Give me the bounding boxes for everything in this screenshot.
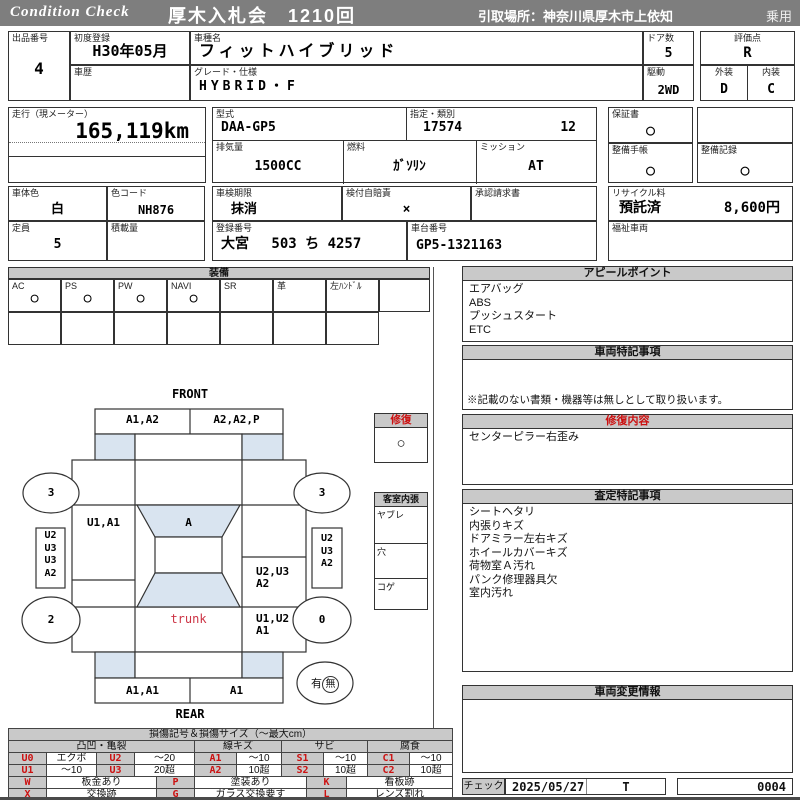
equipment-label-leather: 革 <box>277 281 286 291</box>
mileage-value: 165,119km <box>9 119 205 143</box>
equipment-label-sr: SR <box>224 281 237 291</box>
equipment-label-lhd: 左ﾊﾝﾄﾞﾙ <box>330 281 362 291</box>
insurance-label: 検付自賠責 <box>346 188 391 198</box>
legend-group-scratch: 線キズ <box>195 741 282 753</box>
maintenance-book-mark: ○ <box>609 161 692 179</box>
legend-title: 損傷記号＆損傷サイズ（～最大cm） <box>9 729 453 741</box>
rear-label: REAR <box>140 707 240 721</box>
approval-cell: 承認請求書 <box>471 186 597 221</box>
displacement-label: 排気量 <box>216 142 243 152</box>
capacity-value: 5 <box>9 237 106 252</box>
mission-value: AT <box>476 159 596 174</box>
serial-number-cell: 0004 <box>677 778 793 795</box>
engine-group-cell: 型式 DAA-GP5 指定・類別 17574 12 排気量 1500CC 燃料 … <box>212 107 597 183</box>
legend-group-dent: 凸凹・亀裂 <box>9 741 195 753</box>
equipment-cell-navi: NAVI ○ <box>167 279 220 312</box>
first-registration-value: H30年05月 <box>71 40 189 61</box>
serial-number: 0004 <box>757 780 786 794</box>
exterior-grade-label: 外装 <box>701 67 747 77</box>
car-history-label: 車歴 <box>74 67 92 77</box>
drive-cell: 駆動 2WD <box>643 65 694 101</box>
body-color-label: 車体色 <box>12 188 39 198</box>
equipment-mark-ps: ○ <box>62 291 113 306</box>
assessment-notes-title: 査定特記事項 <box>463 490 792 504</box>
doors-label: ドア数 <box>647 33 674 43</box>
capacity-cell: 定員 5 <box>8 221 107 261</box>
spare-no-circled: 無 <box>322 676 339 693</box>
wheel-front-left-depth: 3 <box>36 486 66 499</box>
doors-cell: ドア数 5 <box>643 31 694 65</box>
interior-grade-cell: 内装 C <box>747 65 795 101</box>
vehicle-notes-footer: ※記載のない書類・機器等は無しとして取り扱います。 <box>467 392 728 407</box>
equipment-label-ps: PS <box>65 281 77 291</box>
change-info-title: 車両変更情報 <box>463 686 792 700</box>
interior-grade-label: 内装 <box>748 67 794 77</box>
repair-detail-list: センターピラー右歪み <box>463 429 792 447</box>
legend-desc: エクボ <box>47 753 97 765</box>
vehicle-notes-title: 車両特記事項 <box>463 346 792 360</box>
designation-label: 指定・類別 <box>410 109 455 119</box>
registration-number-value: 大宮 503 ち 4257 <box>213 233 406 253</box>
header-bar: Condition Check 厚木入札会 1210回 引取場所：神奈川県厚木市… <box>0 0 800 26</box>
maintenance-book-label: 整備手帳 <box>612 145 648 155</box>
displacement-value: 1500CC <box>213 159 343 174</box>
car-history-cell: 車歴 <box>70 65 190 101</box>
equipment-header: 装備 <box>8 267 430 279</box>
body-color-value: 白 <box>9 198 106 217</box>
repair-flag-mark: ○ <box>375 428 427 452</box>
inspection-cell: 車検期限 抹消 <box>212 186 342 221</box>
legend-code: K <box>307 777 347 789</box>
spare-yes-label: 有 <box>311 678 322 690</box>
equipment-cell-leather: 革 <box>273 279 326 312</box>
registration-number-label: 登録番号 <box>216 223 252 233</box>
legend-desc: 看板跡 <box>347 777 453 789</box>
fuel-label: 燃料 <box>347 142 365 152</box>
auction-title: 厚木入札会 1210回 <box>168 2 356 28</box>
legend-code: C1 <box>368 753 410 765</box>
legend-desc: 20超 <box>135 765 195 777</box>
equipment-cell-sr: SR <box>220 279 273 312</box>
grade-cell: グレード・仕様 HYBRID・F <box>190 65 643 101</box>
front-corner-left <box>95 434 135 460</box>
lot-number-value: 4 <box>9 59 69 78</box>
appeal-points-list: エアバッグ ABS プッシュスタート ETC <box>463 281 792 339</box>
warranty-cell: 保証書 ○ <box>608 107 693 143</box>
equipment-mark-navi: ○ <box>168 291 219 306</box>
damage-legend-table: 損傷記号＆損傷サイズ（～最大cm） 凸凹・亀裂 線キズ サビ 腐食 U0 エクボ… <box>8 728 453 777</box>
exterior-grade-cell: 外装 D <box>700 65 748 101</box>
check-label: チェック <box>462 778 505 795</box>
front-door-left-codes: U1,A1 <box>72 516 135 529</box>
chassis-number-value: GP5-1321163 <box>408 238 596 253</box>
legend-code: C2 <box>368 765 410 777</box>
chassis-number-cell: 車台番号 GP5-1321163 <box>407 221 597 261</box>
legend-desc: ～10 <box>237 753 282 765</box>
mileage-divider <box>9 156 205 157</box>
legend-desc: 10超 <box>410 765 453 777</box>
rear-corner-right <box>242 652 283 678</box>
model-code-value: DAA-GP5 <box>213 120 596 135</box>
maintenance-book-cell: 整備手帳 ○ <box>608 143 693 183</box>
brand-logo: Condition Check <box>10 4 130 21</box>
rocker-left-codes: U2 U3 U3 A2 <box>36 530 65 580</box>
check-date-cell: 2025/05/27 T <box>505 778 666 795</box>
legend-code: U3 <box>97 765 135 777</box>
equipment-cell-ac: AC ○ <box>8 279 61 312</box>
model-name-cell: 車種名 フィットハイブリッド <box>190 31 643 65</box>
check-date: 2025/05/27 <box>512 780 584 794</box>
body-color-cell: 車体色 白 <box>8 186 107 221</box>
repair-detail-panel: 修復内容 センターピラー右歪み <box>462 414 793 485</box>
equipment-cell-ps: PS ○ <box>61 279 114 312</box>
equipment-cell-lhd: 左ﾊﾝﾄﾞﾙ <box>326 279 379 312</box>
wheel-rear-right-depth: 0 <box>307 613 337 626</box>
welfare-vehicle-label: 福祉車両 <box>612 223 648 233</box>
legend-code: A1 <box>195 753 237 765</box>
front-corner-right <box>242 434 283 460</box>
pickup-location: 引取場所：神奈川県厚木市上依知 <box>478 6 673 25</box>
recycle-status: 預託済 <box>619 197 661 217</box>
first-registration-cell: 初度登録 H30年05月 <box>70 31 190 65</box>
equipment-cell-pw: PW ○ <box>114 279 167 312</box>
vehicle-category: 乗用 <box>766 6 792 25</box>
right-quarter-codes: U2,U3 A2 <box>256 566 306 590</box>
legend-code: U0 <box>9 753 47 765</box>
equipment-label-ac: AC <box>12 281 25 291</box>
spare-tire-indicator: 有無 <box>297 675 353 693</box>
windshield-code: A <box>137 516 240 529</box>
change-info-panel: 車両変更情報 <box>462 685 793 773</box>
trunk-label: trunk <box>135 612 242 626</box>
score-cell: 評価点 R <box>700 31 795 65</box>
legend-code: P <box>157 777 195 789</box>
maintenance-record-mark: ○ <box>698 161 792 179</box>
equipment-label-pw: PW <box>118 281 133 291</box>
payload-cell: 積載量 <box>107 221 205 261</box>
legend-desc: ～10 <box>47 765 97 777</box>
color-code-label: 色コード <box>111 188 147 198</box>
equipment-label-navi: NAVI <box>171 281 191 291</box>
payload-label: 積載量 <box>111 223 138 233</box>
inspection-value: 抹消 <box>213 198 341 217</box>
cabin-row-hole: 穴 <box>375 544 427 579</box>
legend-code: S1 <box>282 753 324 765</box>
auction-sheet: Condition Check 厚木入札会 1210回 引取場所：神奈川県厚木市… <box>0 0 800 800</box>
color-code-value: NH876 <box>108 203 204 217</box>
legend-group-rust: サビ <box>282 741 368 753</box>
wheel-front-right-depth: 3 <box>307 486 337 499</box>
appeal-points-panel: アピールポイント エアバッグ ABS プッシュスタート ETC <box>462 266 793 342</box>
empty-cell <box>697 107 793 143</box>
front-bumper-right-codes: A2,A2,P <box>190 413 283 426</box>
front-bumper-left-codes: A1,A2 <box>95 413 190 426</box>
rear-bumper-right-codes: A1 <box>190 684 283 697</box>
legend-code: W <box>9 777 47 789</box>
recycle-fee-cell: リサイクル料 預託済 8,600円 <box>608 186 793 221</box>
color-code-cell: 色コード NH876 <box>107 186 205 221</box>
assessment-notes-panel: 査定特記事項 シートヘタリ 内張りキズ ドアミラー左右キズ ホイールカバーキズ … <box>462 489 793 672</box>
maintenance-record-label: 整備記録 <box>701 145 737 155</box>
fuel-value: ｶﾞｿﾘﾝ <box>343 155 476 174</box>
cabin-interior-box: 客室内張 ヤブレ 穴 コゲ <box>374 492 428 610</box>
wheel-rear-left-depth: 2 <box>36 613 66 626</box>
drive-value: 2WD <box>644 83 693 97</box>
registration-number-cell: 登録番号 大宮 503 ち 4257 <box>212 221 407 261</box>
appeal-points-title: アピールポイント <box>463 267 792 281</box>
drive-label: 駆動 <box>647 67 665 77</box>
vehicle-notes-panel: 車両特記事項 ※記載のない書類・機器等は無しとして取り扱います。 <box>462 345 793 410</box>
legend-desc: 10超 <box>237 765 282 777</box>
legend-code: A2 <box>195 765 237 777</box>
lot-number-cell: 出品番号 4 <box>8 31 70 101</box>
warranty-mark: ○ <box>609 121 692 139</box>
roof <box>155 537 222 573</box>
legend-desc: 10超 <box>324 765 368 777</box>
equipment-mark-ac: ○ <box>9 291 60 306</box>
score-value: R <box>701 45 794 61</box>
legend-group-corrosion: 腐食 <box>368 741 453 753</box>
repair-detail-title: 修復内容 <box>463 415 792 429</box>
designation-value-2: 12 <box>560 120 576 135</box>
capacity-label: 定員 <box>12 223 30 233</box>
mileage-cell: 走行（現メーター） 165,119km <box>8 107 206 183</box>
approval-label: 承認請求書 <box>475 188 520 198</box>
doors-value: 5 <box>644 46 693 61</box>
rear-bumper-left-codes: A1,A1 <box>95 684 190 697</box>
mileage-divider-dotted <box>9 142 205 143</box>
warranty-label: 保証書 <box>612 109 639 119</box>
rocker-right-codes: U2 U3 A2 <box>312 533 342 571</box>
legend-desc: ～10 <box>324 753 368 765</box>
designation-value-1: 17574 <box>423 120 462 135</box>
cabin-interior-title: 客室内張 <box>375 493 427 507</box>
legend-desc: 塗装あり <box>195 777 307 789</box>
welfare-vehicle-cell: 福祉車両 <box>608 221 793 261</box>
cabin-row-burn: コゲ <box>375 579 427 613</box>
insurance-mark: × <box>343 202 470 217</box>
grade-value: HYBRID・F <box>191 75 642 94</box>
equipment-mark-pw: ○ <box>115 291 166 306</box>
model-code-label: 型式 <box>216 109 234 119</box>
check-inspector: T <box>586 780 666 794</box>
maintenance-record-cell: 整備記録 ○ <box>697 143 793 183</box>
legend-desc: ～20 <box>135 753 195 765</box>
equipment-cell-extra <box>379 279 430 312</box>
score-label: 評価点 <box>701 33 794 43</box>
model-name-value: フィットハイブリッド <box>191 37 642 61</box>
assessment-notes-list: シートヘタリ 内張りキズ ドアミラー左右キズ ホイールカバーキズ 荷物室Ａ汚れ … <box>463 504 792 603</box>
rear-right-codes: U1,U2 A1 <box>256 613 306 637</box>
inspection-label: 車検期限 <box>216 188 252 198</box>
change-info-list <box>463 700 792 704</box>
repair-flag-box: 修復 ○ <box>374 413 428 463</box>
recycle-fee-value: 8,600円 <box>724 197 780 217</box>
front-label: FRONT <box>140 387 240 401</box>
cabin-row-tear: ヤブレ <box>375 507 427 544</box>
legend-desc: ～10 <box>410 753 453 765</box>
repair-flag-title: 修復 <box>375 414 427 428</box>
mission-label: ミッション <box>480 142 525 152</box>
rear-window <box>137 573 240 607</box>
insurance-cell: 検付自賠責 × <box>342 186 471 221</box>
lot-number-label: 出品番号 <box>12 33 48 43</box>
legend-desc: 板金あり <box>47 777 157 789</box>
legend-code: S2 <box>282 765 324 777</box>
mileage-label: 走行（現メーター） <box>12 109 93 119</box>
rear-corner-left <box>95 652 135 678</box>
chassis-number-label: 車台番号 <box>411 223 447 233</box>
legend-code: U2 <box>97 753 135 765</box>
interior-grade-value: C <box>748 82 794 97</box>
legend-code: U1 <box>9 765 47 777</box>
exterior-grade-value: D <box>701 82 747 97</box>
